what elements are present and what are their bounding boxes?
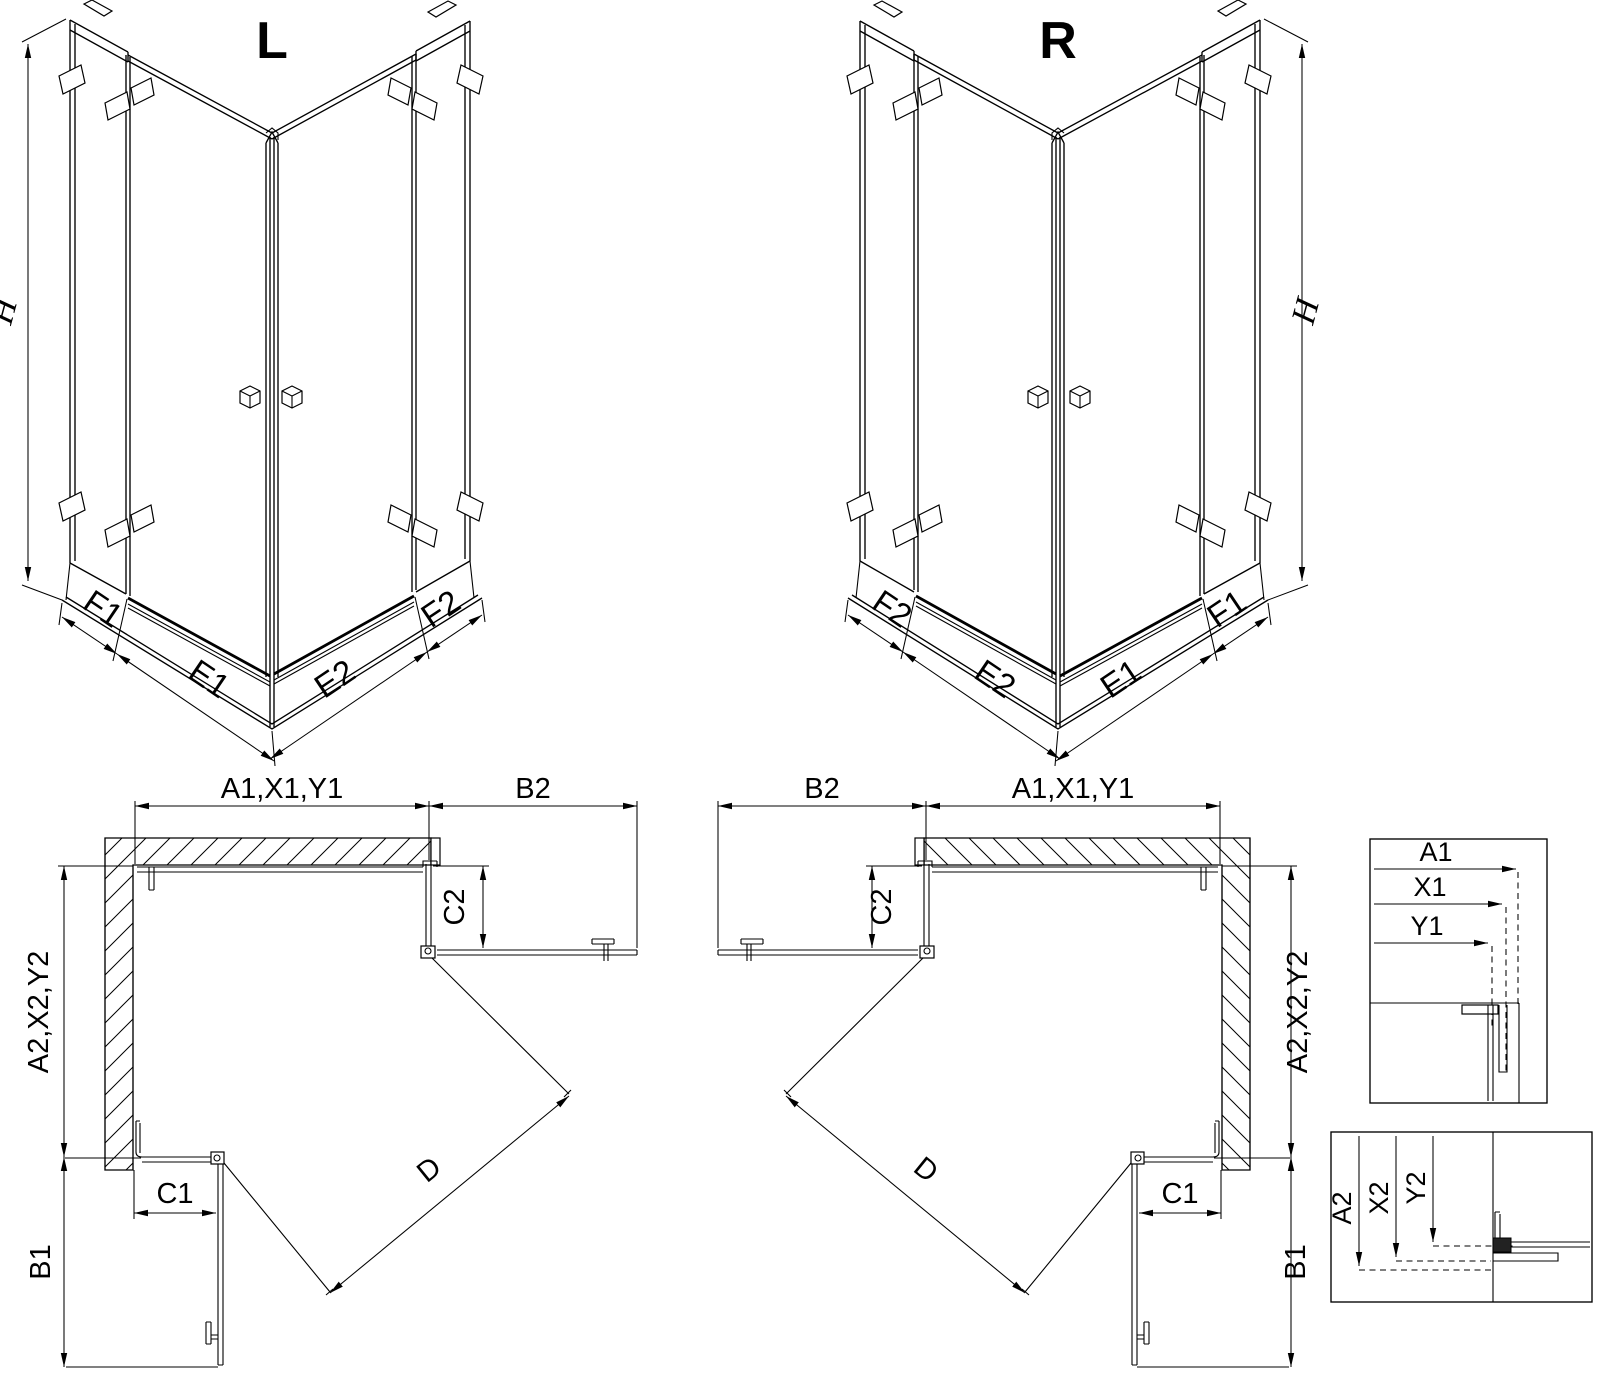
iso-left-view-label: L: [256, 12, 288, 70]
iso-view-right: R H F2 E2 E1 F1: [845, 0, 1328, 766]
plan-left-width-dim: A1,X1,Y1: [221, 773, 344, 805]
plan-right-depth-dim: A2,X2,Y2: [1282, 951, 1314, 1074]
detail-width-reference: A1 X1 Y1: [1370, 837, 1547, 1103]
plan-right-c2-dim: C2: [866, 888, 898, 925]
plan-left-c1-dim: C1: [156, 1178, 193, 1210]
shower-enclosure-technical-drawing: L H F1 E1 E2 F2 R H F2 E2 E1 F1 A1,X1,Y1…: [0, 0, 1600, 1373]
detail-width-dim-a1: A1: [1419, 837, 1452, 867]
detail-depth-dim-y2: Y2: [1401, 1171, 1431, 1204]
iso-view-left: L H F1 E1 E2 F2: [0, 0, 485, 766]
plan-left-depth-dim: A2,X2,Y2: [23, 951, 55, 1074]
plan-left-b1-dim: B1: [25, 1244, 57, 1279]
plan-right-b2-dim: B2: [804, 773, 839, 805]
plan-view-right: A1,X1,Y1 B2 C2 A2,X2,Y2 C1 B1 D: [718, 773, 1314, 1367]
iso-right-dim-f1: F1: [1200, 582, 1253, 634]
plan-left-c2-dim: C2: [439, 888, 471, 925]
detail-depth-dim-a2: A2: [1327, 1191, 1357, 1224]
iso-right-view-label: R: [1039, 12, 1077, 70]
plan-right-entry-dim: D: [907, 1151, 943, 1189]
iso-right-height-label: H: [1285, 292, 1328, 329]
plan-left-entry-dim: D: [411, 1151, 447, 1189]
detail-width-dim-x1: X1: [1413, 872, 1446, 902]
plan-right-c1-dim: C1: [1161, 1178, 1198, 1210]
plan-view-left: A1,X1,Y1 B2 C2 A2,X2,Y2 C1 B1 D: [23, 773, 637, 1367]
iso-left-dim-f1: F1: [77, 582, 130, 634]
detail-depth-reference: A2 X2 Y2: [1327, 1132, 1592, 1302]
plan-right-b1-dim: B1: [1280, 1244, 1312, 1279]
iso-left-height-label: H: [0, 292, 26, 329]
detail-depth-dim-x2: X2: [1364, 1181, 1394, 1214]
drawing-canvas: L H F1 E1 E2 F2 R H F2 E2 E1 F1 A1,X1,Y1…: [0, 0, 1600, 1373]
plan-right-width-dim: A1,X1,Y1: [1012, 773, 1135, 805]
plan-left-b2-dim: B2: [515, 773, 550, 805]
detail-width-dim-y1: Y1: [1410, 911, 1443, 941]
